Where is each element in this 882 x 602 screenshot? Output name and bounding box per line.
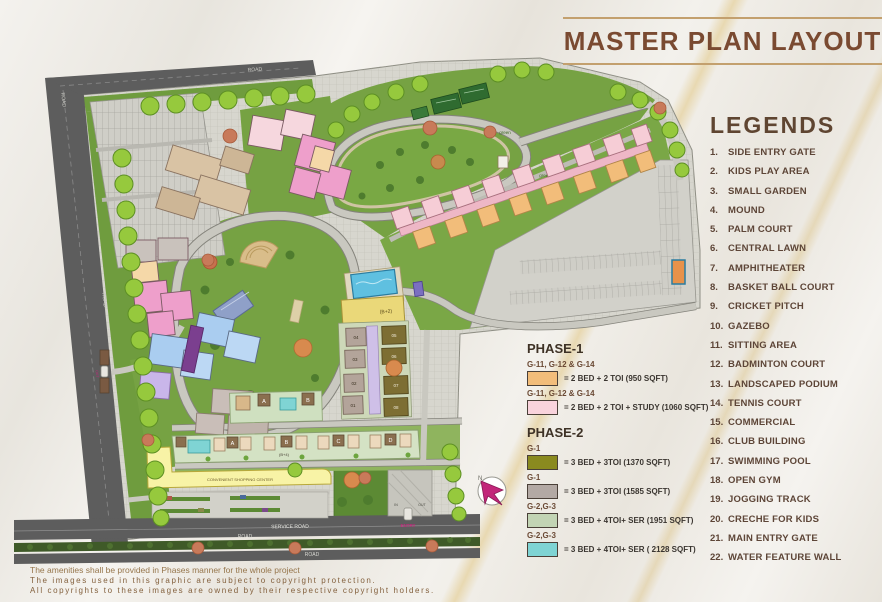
page-title: MASTER PLAN LAYOUT	[563, 26, 882, 57]
svg-text:01: 01	[350, 403, 356, 408]
svg-text:ENTRY: ENTRY	[400, 523, 415, 528]
legend-item: 16.CLUB BUILDING	[710, 436, 880, 447]
row-pool	[188, 440, 210, 453]
svg-text:ROAD: ROAD	[238, 534, 253, 540]
svg-text:07: 07	[393, 383, 399, 388]
svg-text:04: 04	[353, 335, 359, 340]
legend-item: 21.MAIN ENTRY GATE	[710, 533, 880, 544]
club-and-pool: (B+2)	[341, 267, 405, 326]
phase2-item: G-1 = 3 BED + 3TOI (1585 SQFT)	[527, 473, 702, 499]
footer-disclaimer: The amenities shall be provided in Phase…	[30, 565, 450, 596]
svg-text:(B+4): (B+4)	[279, 452, 290, 457]
legends-heading: LEGENDS	[710, 112, 880, 139]
legend-item: 5.PALM COURT	[710, 224, 880, 235]
phase2-item: G-1 = 3 BED + 3TOI (1370 SQFT)	[527, 444, 702, 470]
legend-item: 4.MOUND	[710, 205, 880, 216]
svg-text:CONVENIENT SHOPPING CENTER: CONVENIENT SHOPPING CENTER	[207, 477, 273, 482]
svg-text:A: A	[231, 441, 235, 447]
phase2-swatch-teal	[527, 542, 558, 557]
legend-item: 14.TENNIS COURT	[710, 398, 880, 409]
phase2-item: G-2,G-3 = 3 BED + 4TOI+ SER ( 2128 SQFT)	[527, 531, 702, 557]
legend-item: 19.JOGGING TRACK	[710, 494, 880, 505]
legend-item: 8.BASKET BALL COURT	[710, 282, 880, 293]
svg-text:08: 08	[393, 405, 399, 410]
legend-item: 12.BADMINTON COURT	[710, 359, 880, 370]
phase2-heading: PHASE-2	[527, 425, 702, 440]
svg-text:OUT: OUT	[418, 503, 426, 507]
gazebo	[498, 156, 508, 168]
svg-text:03: 03	[352, 357, 358, 362]
buildings-mid-row: A B	[230, 391, 323, 423]
svg-text:IN: IN	[394, 503, 398, 507]
legend-item: 9.CRICKET PITCH	[710, 301, 880, 312]
master-plan-page: SERVICE ROAD ROAD ROAD ROAD ROAD ROAD	[0, 0, 882, 602]
phase1-swatch-pink	[527, 400, 558, 415]
legend-item: 6.CENTRAL LAWN	[710, 243, 880, 254]
legend-item: 17.SWIMMING POOL	[710, 456, 880, 467]
phase2-swatch-olive	[527, 455, 558, 470]
legend-item: 10.GAZEBO	[710, 321, 880, 332]
legend-item: 15.COMMERCIAL	[710, 417, 880, 428]
svg-text:A: A	[262, 399, 266, 405]
svg-text:C: C	[337, 439, 341, 445]
phase2-swatch-green	[527, 513, 558, 528]
svg-text:D: D	[389, 438, 393, 444]
svg-text:B: B	[285, 440, 289, 446]
phase1-item: G-11, G-12 & G-14 = 2 BED + 2 TOI + STUD…	[527, 389, 702, 415]
legend-item: 20.CRECHE FOR KIDS	[710, 514, 880, 525]
phase1-heading: PHASE-1	[527, 341, 702, 356]
legend-item: 13.LANDSCAPED PODIUM	[710, 379, 880, 390]
compass-icon: N	[478, 476, 506, 505]
svg-text:green: green	[499, 130, 511, 135]
legend-item: 3.SMALL GARDEN	[710, 186, 880, 197]
svg-text:05: 05	[391, 333, 397, 338]
disclaimer-line: All copyrights to these images are owned…	[30, 586, 450, 595]
disclaimer-line: The amenities shall be provided in Phase…	[30, 565, 450, 575]
svg-text:ROAD: ROAD	[248, 66, 263, 73]
svg-text:B: B	[306, 398, 310, 404]
buildings-bottom-row: A B C D (B+4)	[172, 430, 420, 463]
disclaimer-line: The images used in this graphic are subj…	[30, 576, 450, 585]
svg-text:ROAD: ROAD	[305, 552, 320, 558]
phase1-item: G-11, G-12 & G-14 = 2 BED + 2 TOI (950 S…	[527, 360, 702, 386]
phase2-swatch-taupe	[527, 484, 558, 499]
legend-item: 2.KIDS PLAY AREA	[710, 166, 880, 177]
phase2-item: G-2,G-3 = 3 BED + 4TOI+ SER (1951 SQFT)	[527, 502, 702, 528]
svg-text:N: N	[478, 476, 482, 482]
legend-item: 18.OPEN GYM	[710, 475, 880, 486]
legends-panel: LEGENDS 1.SIDE ENTRY GATE 2.KIDS PLAY AR…	[710, 112, 880, 572]
legend-item: 1.SIDE ENTRY GATE	[710, 147, 880, 158]
buildings-olive-cluster: 04 03 02 01 05 06 07 08	[338, 321, 411, 419]
svg-text:(B+2): (B+2)	[380, 309, 393, 316]
legend-item: 22.WATER FEATURE WALL	[710, 552, 880, 563]
phase-legend: PHASE-1 G-11, G-12 & G-14 = 2 BED + 2 TO…	[527, 341, 702, 560]
title-block: MASTER PLAN LAYOUT	[563, 17, 882, 65]
svg-text:02: 02	[351, 381, 357, 386]
legend-item: 11.SITTING AREA	[710, 340, 880, 351]
phase1-swatch-orange	[527, 371, 558, 386]
svg-text:06: 06	[391, 354, 397, 359]
legend-item: 7.AMPHITHEATER	[710, 263, 880, 274]
svg-text:SERVICE ROAD: SERVICE ROAD	[271, 524, 309, 530]
